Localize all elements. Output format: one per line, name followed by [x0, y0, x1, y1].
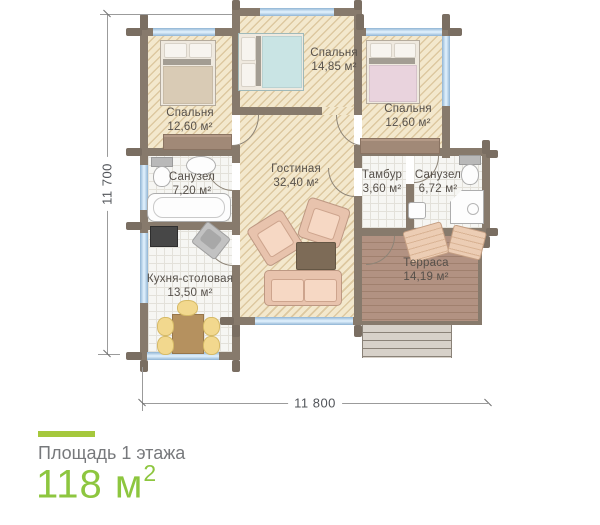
window: [153, 28, 215, 36]
wardrobe: [360, 138, 440, 154]
window: [260, 8, 334, 16]
bathtub-basin: [153, 197, 225, 218]
armchair-cushion: [256, 220, 295, 259]
sink-basin: [199, 228, 222, 251]
accent-bar: [38, 431, 95, 437]
sofa: [264, 270, 342, 306]
room-area: 12,60 м²: [148, 120, 232, 134]
log-stub: [486, 228, 498, 236]
room-name: Гостиная: [271, 163, 321, 175]
log-stub: [126, 222, 142, 230]
chair: [177, 300, 198, 316]
pillow: [370, 43, 392, 58]
wall: [232, 190, 240, 235]
window: [442, 36, 450, 106]
bed-headboard: [163, 59, 211, 65]
room-area: 12,60 м²: [372, 116, 444, 130]
room-name: Тамбур: [362, 169, 402, 181]
floor-plan-page: Спальня 12,60 м² Спальня 14,85 м² Спальн…: [0, 0, 600, 525]
room-floor: [322, 107, 354, 115]
pillow: [394, 43, 416, 58]
room-label-kitchen: Кухня-столовая 13,50 м²: [144, 272, 236, 301]
pillow: [241, 37, 256, 61]
room-label-bedroom-mid: Спальня 14,85 м²: [298, 46, 370, 75]
wall: [240, 107, 322, 115]
log-stub: [126, 352, 142, 360]
pillow: [164, 43, 187, 58]
wardrobe: [163, 134, 232, 150]
room-label-bedroom-right: Спальня 12,60 м²: [372, 102, 444, 131]
chair: [203, 317, 220, 336]
room-area: 14,85 м²: [298, 60, 370, 74]
chair: [157, 317, 174, 336]
blanket: [369, 65, 417, 102]
room-name: Санузел: [169, 171, 215, 183]
sofa-cushion: [271, 279, 304, 302]
room-label-vestibule: Тамбур 3,60 м²: [356, 168, 408, 197]
floor-area-label: Площадь 1 этажа: [38, 443, 185, 464]
log-stub: [448, 28, 462, 36]
room-area: 32,40 м²: [256, 176, 336, 190]
pillow: [189, 43, 212, 58]
pillow: [241, 63, 256, 87]
stove: [150, 226, 178, 247]
room-area: 3,60 м²: [356, 182, 408, 196]
room-label-terrace: Терраса 14,19 м²: [384, 256, 468, 285]
area-unit: м: [115, 462, 144, 506]
room-name: Спальня: [166, 107, 214, 119]
room-area: 6,72 м²: [408, 182, 468, 196]
area-unit-sup: 2: [143, 460, 157, 486]
entrance-steps: [362, 325, 452, 358]
sink: [408, 202, 426, 219]
wall: [354, 196, 362, 325]
area-number: 118: [36, 462, 103, 506]
chair: [203, 336, 220, 355]
room-label-bathroom-left: Санузел 7,20 м²: [154, 170, 230, 199]
room-label-bedroom-left: Спальня 12,60 м²: [148, 106, 232, 135]
blanket: [163, 66, 213, 104]
bed-headboard: [369, 58, 415, 64]
log-stub: [232, 360, 240, 372]
log-stub: [126, 28, 142, 36]
armchair-cushion: [306, 207, 341, 240]
log-stub: [220, 317, 234, 325]
dining-table: [172, 314, 204, 354]
bed-headboard: [256, 36, 261, 86]
room-name: Кухня-столовая: [147, 273, 233, 285]
room-name: Спальня: [310, 47, 358, 59]
room-name: Терраса: [403, 257, 449, 269]
room-label-living: Гостиная 32,40 м²: [256, 162, 336, 191]
coffee-table: [296, 242, 336, 270]
room-area: 13,50 м²: [144, 286, 236, 300]
dimension-extension: [100, 14, 232, 15]
log-stub: [356, 14, 364, 30]
log-stub: [354, 0, 362, 10]
window: [366, 28, 442, 36]
room-area: 7,20 м²: [154, 184, 230, 198]
room-name: Санузел: [415, 169, 461, 181]
bed-double: [366, 40, 420, 104]
blanket: [262, 36, 302, 88]
bed-double: [238, 33, 304, 91]
room-name: Спальня: [384, 103, 432, 115]
floor-area-value: 118 м2: [36, 462, 157, 507]
log-stub: [354, 325, 362, 337]
room-label-bathroom-right: Санузел 6,72 м²: [408, 168, 468, 197]
log-stub: [486, 150, 498, 158]
sofa-cushion: [304, 279, 337, 302]
log-stub: [232, 0, 240, 10]
log-stub: [126, 148, 142, 156]
chair: [157, 336, 174, 355]
shower-drain: [467, 203, 479, 215]
log-stub: [232, 325, 240, 337]
bed-double: [160, 40, 216, 106]
room-area: 14,19 м²: [384, 270, 468, 284]
window: [255, 317, 353, 325]
wall: [362, 321, 480, 325]
